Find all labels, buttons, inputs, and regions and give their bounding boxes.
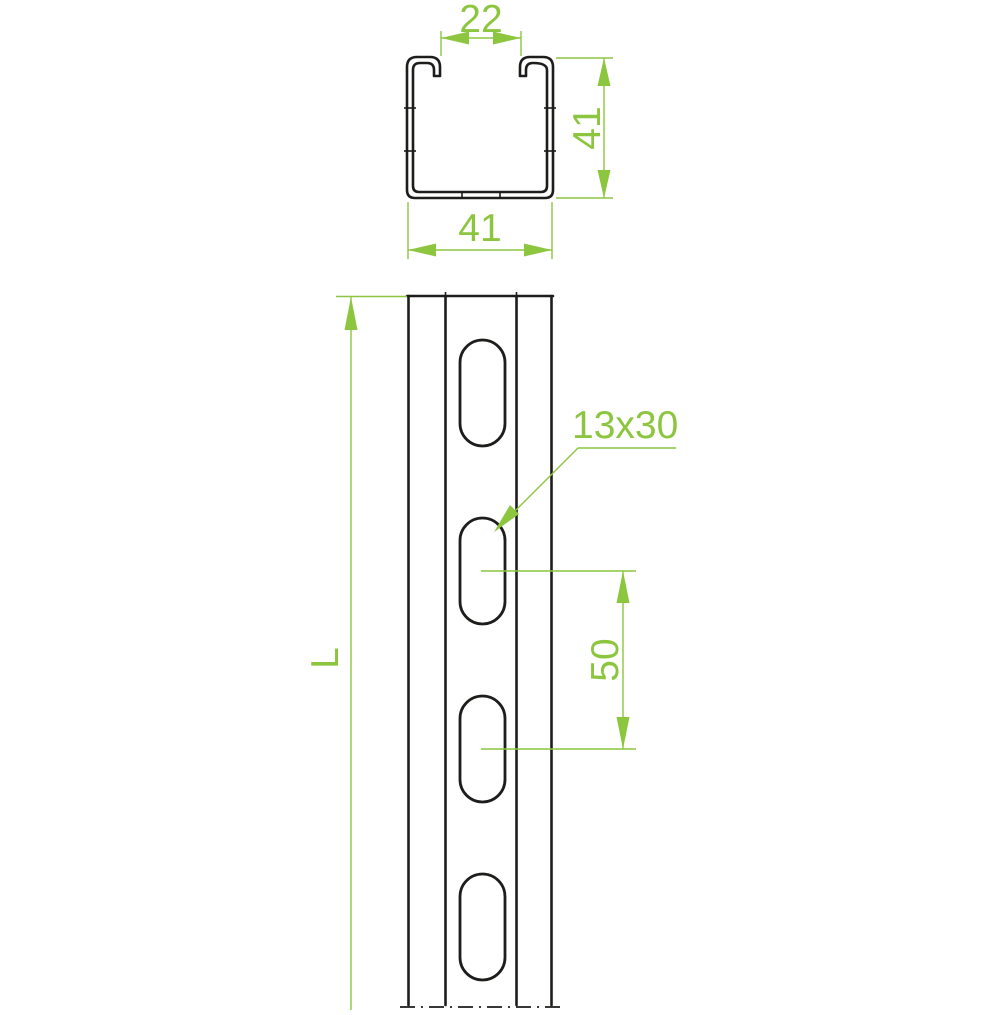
dim-length: L [304,297,407,1011]
arrowhead-up-icon [617,571,630,603]
channel-cross-section-profile [407,57,553,198]
dim-section-width: 41 [408,202,552,259]
dim-length-label: L [304,647,347,669]
arrowhead-down-icon [617,717,630,749]
dim-opening-width-label: 22 [459,0,502,41]
dim-slot-spacing-label: 50 [584,638,627,681]
arrowhead-up-icon [345,297,358,330]
cross-section-view: 22 41 41 [404,0,613,259]
slot-size-label: 13x30 [572,404,678,447]
slot-hole-1 [460,340,505,446]
arrowhead-right-icon [524,244,552,257]
arrowhead-left-icon [408,244,436,257]
technical-drawing-canvas: 22 41 41 [0,0,986,1015]
arrowhead-down-icon [598,170,611,198]
arrowhead-up-icon [598,58,611,86]
dim-section-height-label: 41 [566,106,609,149]
slot-hole-4 [460,874,505,980]
dim-section-height: 41 [556,58,613,198]
strut-channel-drawing: 22 41 41 [0,0,986,1015]
dim-section-width-label: 41 [458,207,501,250]
dim-opening-width: 22 [441,0,521,56]
front-view: L 13x30 50 [304,292,678,1010]
slot-size-callout: 13x30 [494,404,678,532]
